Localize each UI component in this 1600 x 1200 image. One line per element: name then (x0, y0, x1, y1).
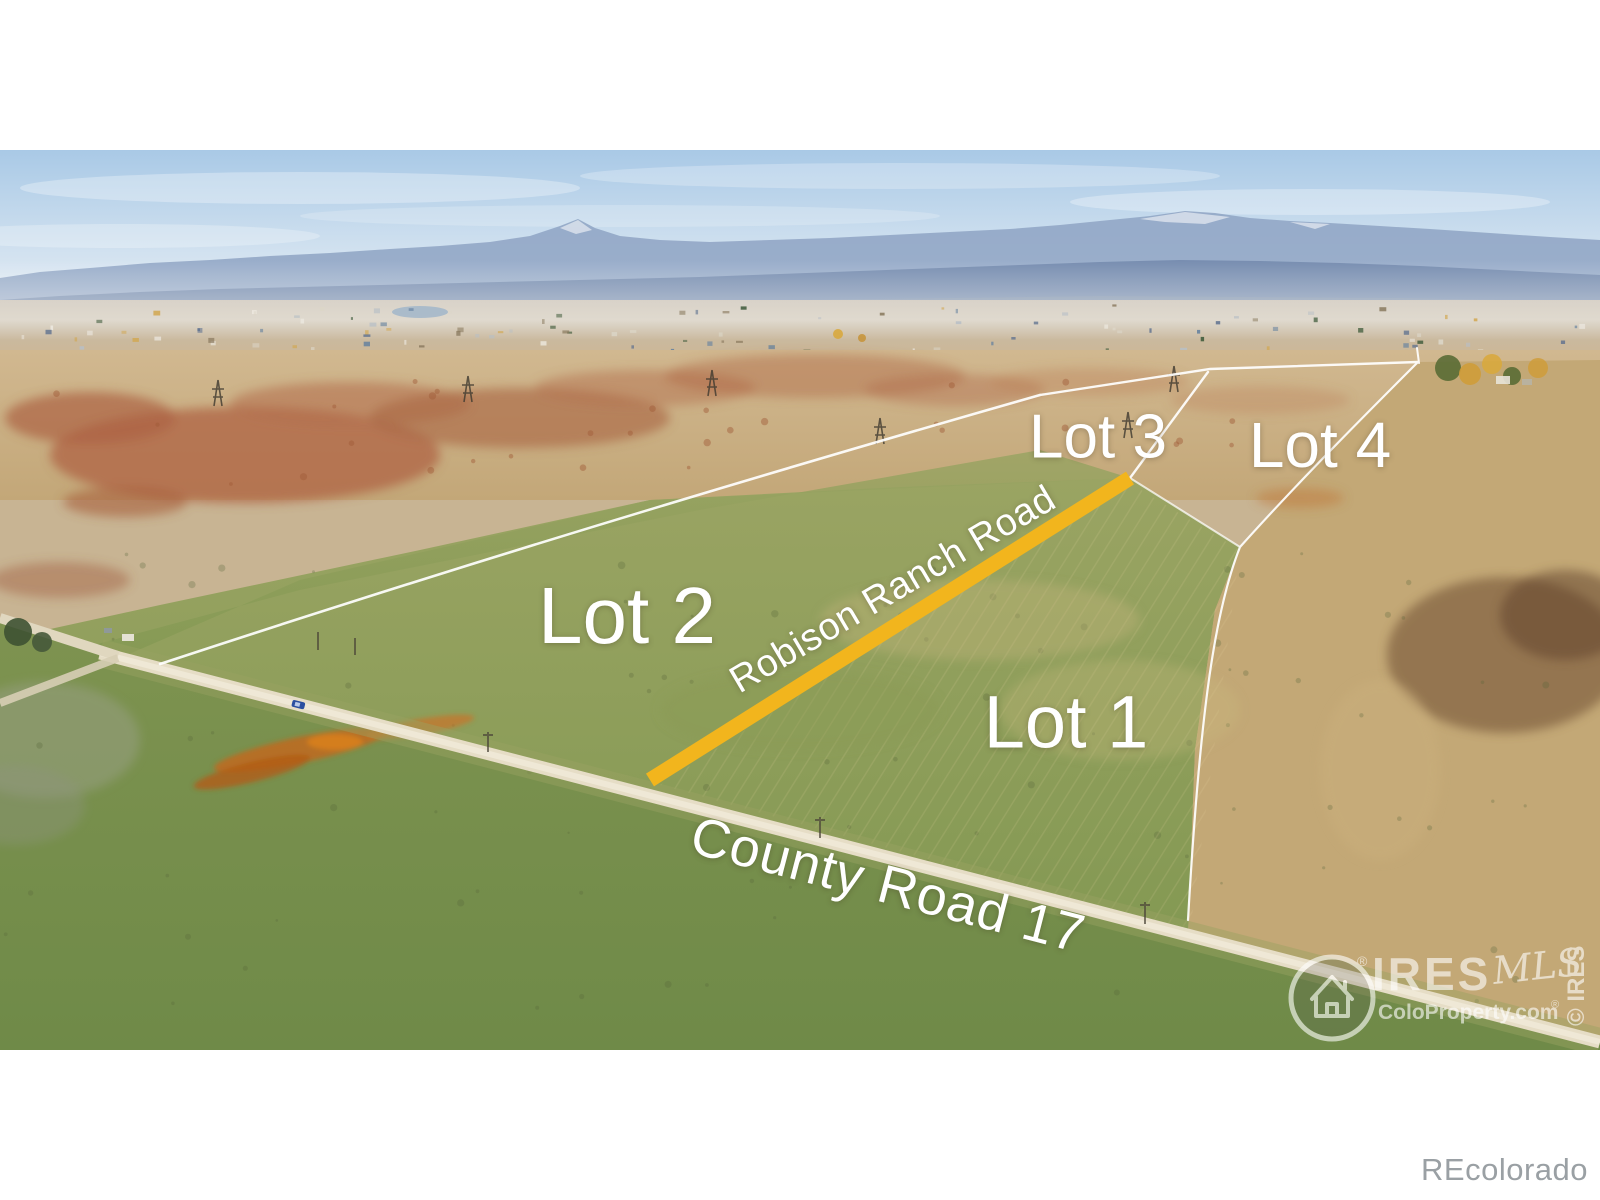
ires-registered-mark: ® (1357, 953, 1368, 969)
ires-logo-text: IRES (1372, 948, 1491, 1000)
ires-side-text: © IRES (1563, 946, 1590, 1026)
coloproperty-text: ColoProperty.com (1378, 1001, 1558, 1024)
site-registered-mark: ® (1551, 999, 1559, 1011)
page-canvas: ® IRES MLS ColoProperty.com ® © IRES Lot… (0, 0, 1600, 1200)
aerial-photo: ® IRES MLS ColoProperty.com ® © IRES Lot… (0, 150, 1600, 1050)
recolorado-watermark: REcolorado (1421, 1152, 1588, 1188)
terrain-art: ® IRES MLS ColoProperty.com ® © IRES (0, 150, 1600, 1050)
ires-badge-circle (1291, 957, 1373, 1039)
lot-label-2: Lot 2 (538, 570, 716, 662)
lot-label-4: Lot 4 (1249, 408, 1391, 482)
tan-blend (1320, 680, 1440, 860)
distant-lake (392, 306, 448, 318)
lot-label-3: Lot 3 (1029, 402, 1167, 473)
lot-label-1: Lot 1 (984, 680, 1149, 765)
